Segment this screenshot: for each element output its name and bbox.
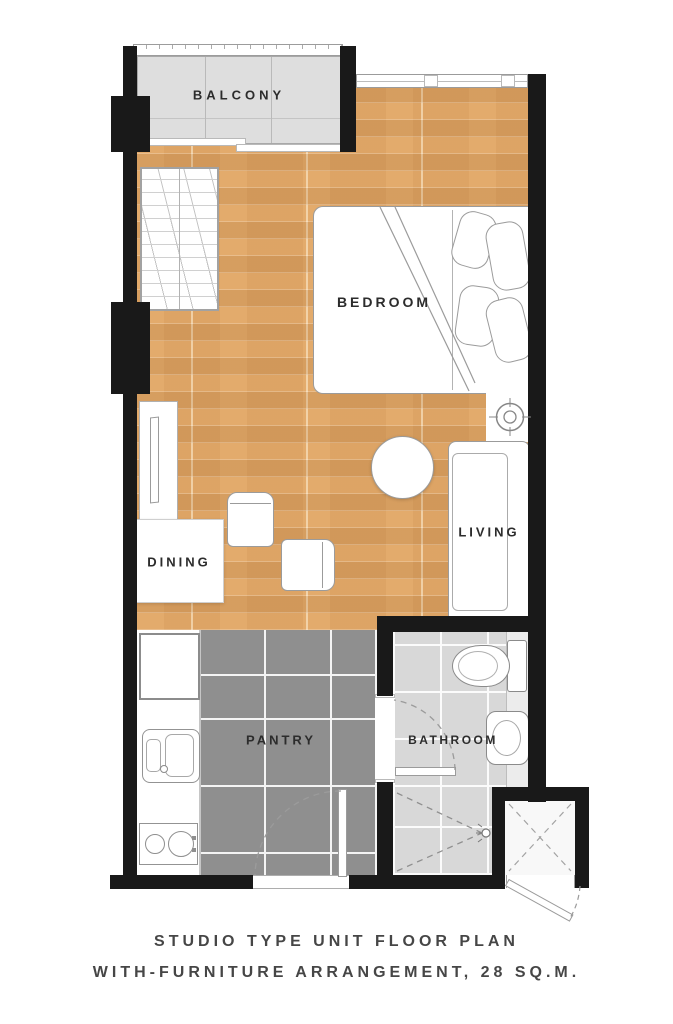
wall-bottom-left — [110, 875, 253, 889]
refrigerator — [139, 633, 200, 700]
wall-bottom-bath — [393, 875, 505, 889]
cooktop-burner — [168, 831, 194, 857]
wall-living-bath — [377, 616, 546, 632]
living-label: LIVING — [458, 525, 519, 540]
wall-balcony-post — [340, 46, 356, 152]
sink-bowl-large — [165, 734, 194, 777]
bedroom-label: BEDROOM — [337, 294, 431, 310]
sink-bowl-small — [146, 739, 161, 772]
entrance-threshold — [253, 875, 349, 889]
balcony-sliding-door-pane — [236, 144, 341, 152]
wall-column — [111, 302, 150, 394]
wall-service-right — [575, 787, 589, 888]
wardrobe-divider — [179, 169, 180, 309]
dining-chair — [281, 539, 335, 591]
balcony-label: BALCONY — [193, 88, 285, 103]
dining-chair-back — [230, 503, 271, 504]
bathroom-label: BATHROOM — [408, 733, 498, 747]
wall-column — [111, 96, 150, 152]
entrance-door-leaf — [338, 789, 347, 877]
dining-chair-back — [322, 542, 323, 588]
balcony-sliding-door-pane — [140, 138, 246, 146]
bed-mattress-edge — [452, 210, 453, 390]
wall-bottom-mid — [349, 875, 377, 889]
dining-chair — [227, 492, 274, 547]
floor-plan: BALCONY BEDROOM DINING LIVING PANTRY BAT… — [0, 0, 673, 1024]
window-mullion — [424, 75, 438, 87]
sink-faucet — [160, 765, 168, 773]
round-side-table — [371, 436, 434, 499]
downlight-patch — [486, 392, 528, 442]
wall-left — [123, 46, 137, 888]
service-ledge — [505, 801, 575, 875]
cooktop-knob — [192, 848, 196, 852]
tv — [150, 416, 159, 503]
wall-pantry-bath-lower — [377, 782, 393, 889]
bathroom-door-leaf — [395, 767, 456, 776]
cooktop-knob — [192, 836, 196, 840]
caption-line-2: WITH-FURNITURE ARRANGEMENT, 28 SQ.M. — [93, 964, 580, 982]
balcony-railing — [133, 44, 343, 56]
toilet-seat — [458, 651, 498, 681]
cooktop-burner — [145, 834, 165, 854]
caption-line-1: STUDIO TYPE UNIT FLOOR PLAN — [154, 933, 519, 951]
bathroom-door-opening — [375, 694, 395, 784]
wall-service-left — [492, 787, 505, 878]
dining-label: DINING — [147, 555, 211, 570]
toilet-tank — [507, 640, 527, 692]
wall-right — [528, 74, 546, 802]
wall-pantry-bath-upper — [377, 616, 393, 696]
bathroom-floor-shower — [393, 787, 492, 875]
pantry-label: PANTRY — [246, 733, 316, 748]
window-mullion — [501, 75, 515, 87]
